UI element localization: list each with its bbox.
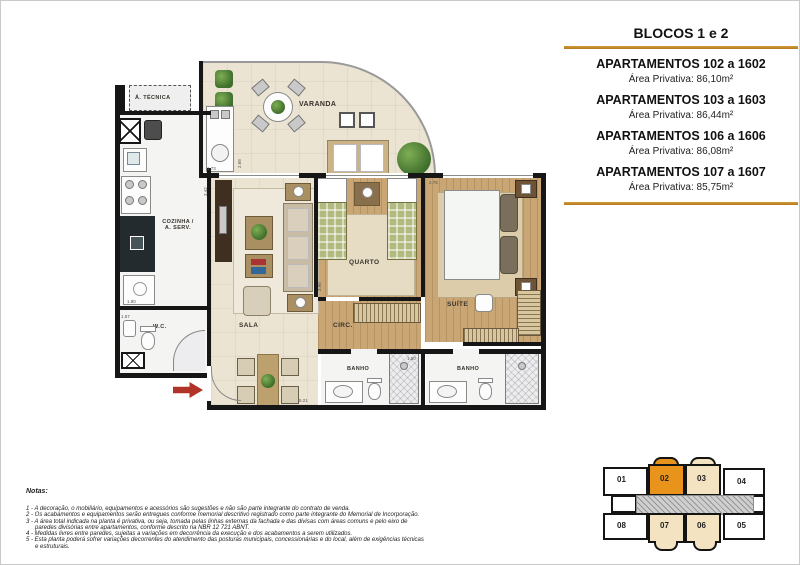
cozinha-line2: A. SERV. — [165, 225, 191, 231]
keyplan-unit-number: 03 — [697, 474, 706, 483]
armchair — [243, 286, 271, 316]
tv — [219, 206, 227, 234]
daybed-cushion — [333, 144, 357, 172]
bath-sink — [437, 385, 457, 398]
books — [251, 267, 266, 274]
centerpiece-plant-icon — [261, 374, 275, 388]
apartment-name: APARTAMENTOS 103 a 1603 — [564, 93, 798, 107]
stove-burner — [125, 196, 134, 205]
wall-art — [359, 112, 375, 128]
keyplan-unit-number: 04 — [737, 477, 746, 486]
books — [251, 259, 266, 265]
wall-segment — [119, 306, 207, 310]
keyplan-balcony — [654, 541, 678, 551]
double-bed-pillow — [500, 194, 518, 232]
shaft-box — [119, 118, 141, 144]
room-label-banho1: BANHO — [347, 366, 369, 372]
sofa-cushion — [287, 236, 309, 260]
room-label-quarto: QUARTO — [349, 259, 379, 266]
shower-stall — [505, 352, 539, 404]
entrance-arrow-icon — [173, 382, 203, 398]
lamp — [295, 297, 306, 308]
keyplan-unit-number: 08 — [617, 521, 626, 530]
keyplan-unit-number: 02 — [660, 474, 669, 483]
gold-rule — [564, 202, 798, 205]
suite-wardrobe — [517, 290, 541, 336]
toilet-tank — [140, 326, 156, 332]
wall-segment — [199, 61, 203, 178]
dimension-label: 3.42 — [203, 187, 208, 196]
plant-icon — [215, 70, 233, 88]
shower-head-icon — [518, 362, 526, 370]
wall-segment — [377, 349, 453, 354]
dimension-label: 2.76 — [429, 180, 438, 185]
wall-segment — [207, 168, 211, 366]
cooktop — [221, 110, 230, 119]
toilet — [368, 383, 381, 400]
lamp — [362, 187, 373, 198]
stove-burner — [138, 180, 147, 189]
sofa-cushion — [287, 264, 309, 288]
stove-burner — [138, 196, 147, 205]
double-bed-pillow — [500, 236, 518, 274]
counter-sink — [130, 236, 144, 250]
keyplan-unit-number: 07 — [660, 521, 669, 530]
keyplan-unit-number: 05 — [737, 521, 746, 530]
toilet — [479, 383, 492, 400]
wall-segment — [479, 349, 542, 354]
plant-icon — [397, 142, 431, 176]
room-label-sala: SALA — [239, 322, 258, 329]
island-sink — [211, 144, 229, 162]
wall-art — [339, 112, 355, 128]
wall-segment — [318, 349, 351, 354]
wall-segment — [421, 354, 425, 405]
key-plan: 01 02 03 04 05 06 07 08 — [601, 451, 797, 563]
room-label-cozinha: COZINHA / A. SERV. — [151, 219, 205, 231]
dimension-label: 5.21 — [299, 398, 308, 403]
apartment-name: APARTAMENTOS 106 a 1606 — [564, 129, 798, 143]
nightstand-lamp — [521, 184, 531, 194]
wall-segment — [421, 178, 425, 297]
toilet-tank — [367, 378, 382, 383]
kitchen-sink-basin — [127, 152, 140, 165]
apartment-area: Área Privativa: 85,75m² — [564, 182, 798, 193]
single-bed-cover — [317, 202, 347, 260]
laundry-tank — [121, 352, 145, 369]
room-label-circ: CIRC. — [333, 322, 353, 329]
plant-icon — [251, 224, 267, 240]
dimension-label: 1.73 — [207, 166, 216, 171]
wall-segment — [115, 115, 120, 377]
wc-sink — [123, 320, 136, 337]
wall-segment — [207, 405, 546, 410]
keyplan-stair-block — [611, 495, 637, 513]
room-label-banho2: BANHO — [457, 366, 479, 372]
dining-chair — [281, 358, 299, 376]
room-label-suite: SUÍTE — [447, 301, 468, 308]
wall-segment — [463, 342, 542, 346]
keyplan-unit-number: 01 — [617, 475, 626, 484]
shower-head-icon — [400, 362, 408, 370]
window — [326, 173, 408, 178]
note-item: 5 - Esta planta poderá sofrer variações … — [26, 537, 428, 550]
apartment-area: Área Privativa: 86,10m² — [564, 74, 798, 85]
gold-rule — [564, 46, 798, 49]
cooktop — [210, 110, 219, 119]
microwave — [144, 120, 162, 140]
wall-segment — [318, 297, 326, 301]
notes-heading: Notas: — [26, 488, 428, 495]
legend-title: BLOCOS 1 e 2 — [564, 25, 798, 41]
bath-sink — [333, 385, 353, 398]
note-item: 2 - Os acabamentos e equipamentos serão … — [26, 512, 428, 518]
legend-panel: BLOCOS 1 e 2 APARTAMENTOS 102 a 1602 Áre… — [564, 25, 798, 205]
window — [443, 173, 533, 178]
dimension-label: 2.68 — [237, 159, 242, 168]
dining-chair — [281, 386, 299, 404]
wall-segment — [115, 373, 207, 378]
dimension-label: 2.90 — [317, 282, 322, 291]
wall-segment — [359, 297, 421, 301]
note-item: 3 - A área total indicada na planta é pr… — [26, 519, 428, 532]
window — [219, 173, 299, 178]
dimension-label: 1.67 — [121, 314, 130, 319]
keyplan-balcony — [693, 541, 717, 551]
suite-stool — [475, 294, 493, 312]
notes-block: Notas: 1 - A decoração, o mobiliário, eq… — [26, 488, 428, 550]
apartment-area: Área Privativa: 86,44m² — [564, 110, 798, 121]
wall-segment — [314, 178, 318, 297]
quarto-wardrobe — [353, 303, 421, 323]
wall-segment — [541, 173, 546, 410]
dimension-label: 1.50 — [407, 356, 416, 361]
brochure-page: Á. TÉCNICA VARANDA — [0, 0, 800, 565]
apartment-area: Área Privativa: 86,08m² — [564, 146, 798, 157]
media-table — [245, 254, 273, 278]
plant-icon — [271, 100, 285, 114]
daybed-cushion — [360, 144, 384, 172]
apartment-name: APARTAMENTOS 107 a 1607 — [564, 165, 798, 179]
stove-burner — [125, 180, 134, 189]
room-label-varanda: VARANDA — [299, 101, 336, 108]
toilet-tank — [478, 378, 493, 383]
toilet — [141, 332, 155, 350]
double-bed-mattress — [444, 190, 500, 280]
washing-machine-door — [133, 282, 147, 296]
apartment-name: APARTAMENTOS 102 a 1602 — [564, 57, 798, 71]
floor-plan: Á. TÉCNICA VARANDA — [111, 56, 556, 426]
keyplan-unit-number: 06 — [697, 521, 706, 530]
keyplan-corridor — [636, 495, 754, 515]
wall-segment — [115, 111, 211, 115]
room-label-tecnica: Á. TÉCNICA — [135, 95, 170, 101]
single-bed-cover — [387, 202, 417, 260]
sofa-cushion — [287, 208, 309, 232]
dimension-label: 1.80 — [127, 299, 136, 304]
lamp — [293, 186, 304, 197]
